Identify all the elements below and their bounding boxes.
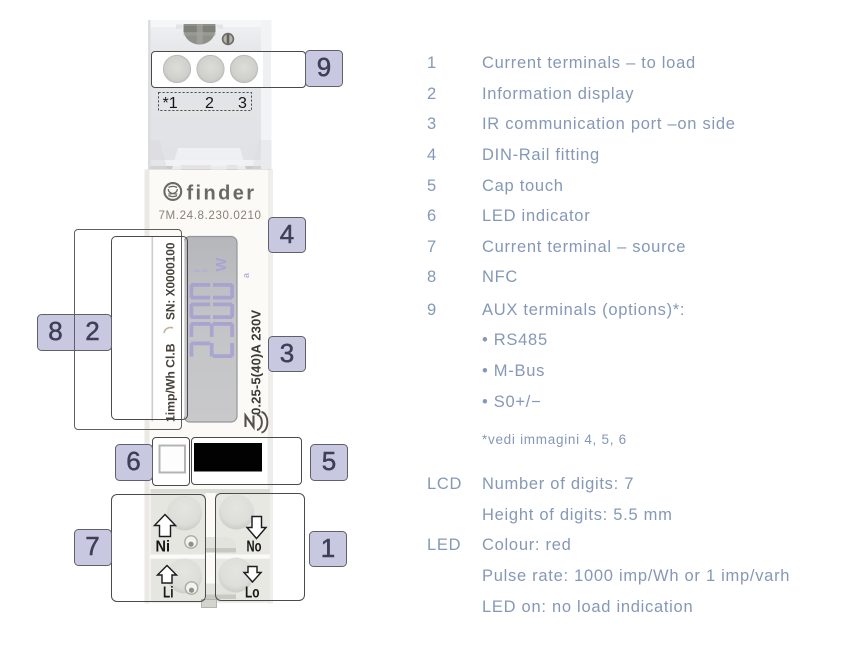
svg-text:3: 3 — [238, 95, 247, 112]
svg-text:W: W — [214, 258, 230, 272]
svg-text:7M.24.8.230.0210: 7M.24.8.230.0210 — [159, 209, 262, 222]
svg-text:2: 2 — [205, 95, 214, 112]
svg-text:*1: *1 — [163, 95, 178, 112]
svg-text:0.25-5(40)A 230V: 0.25-5(40)A 230V — [249, 310, 264, 415]
svg-text:finder: finder — [187, 183, 257, 205]
